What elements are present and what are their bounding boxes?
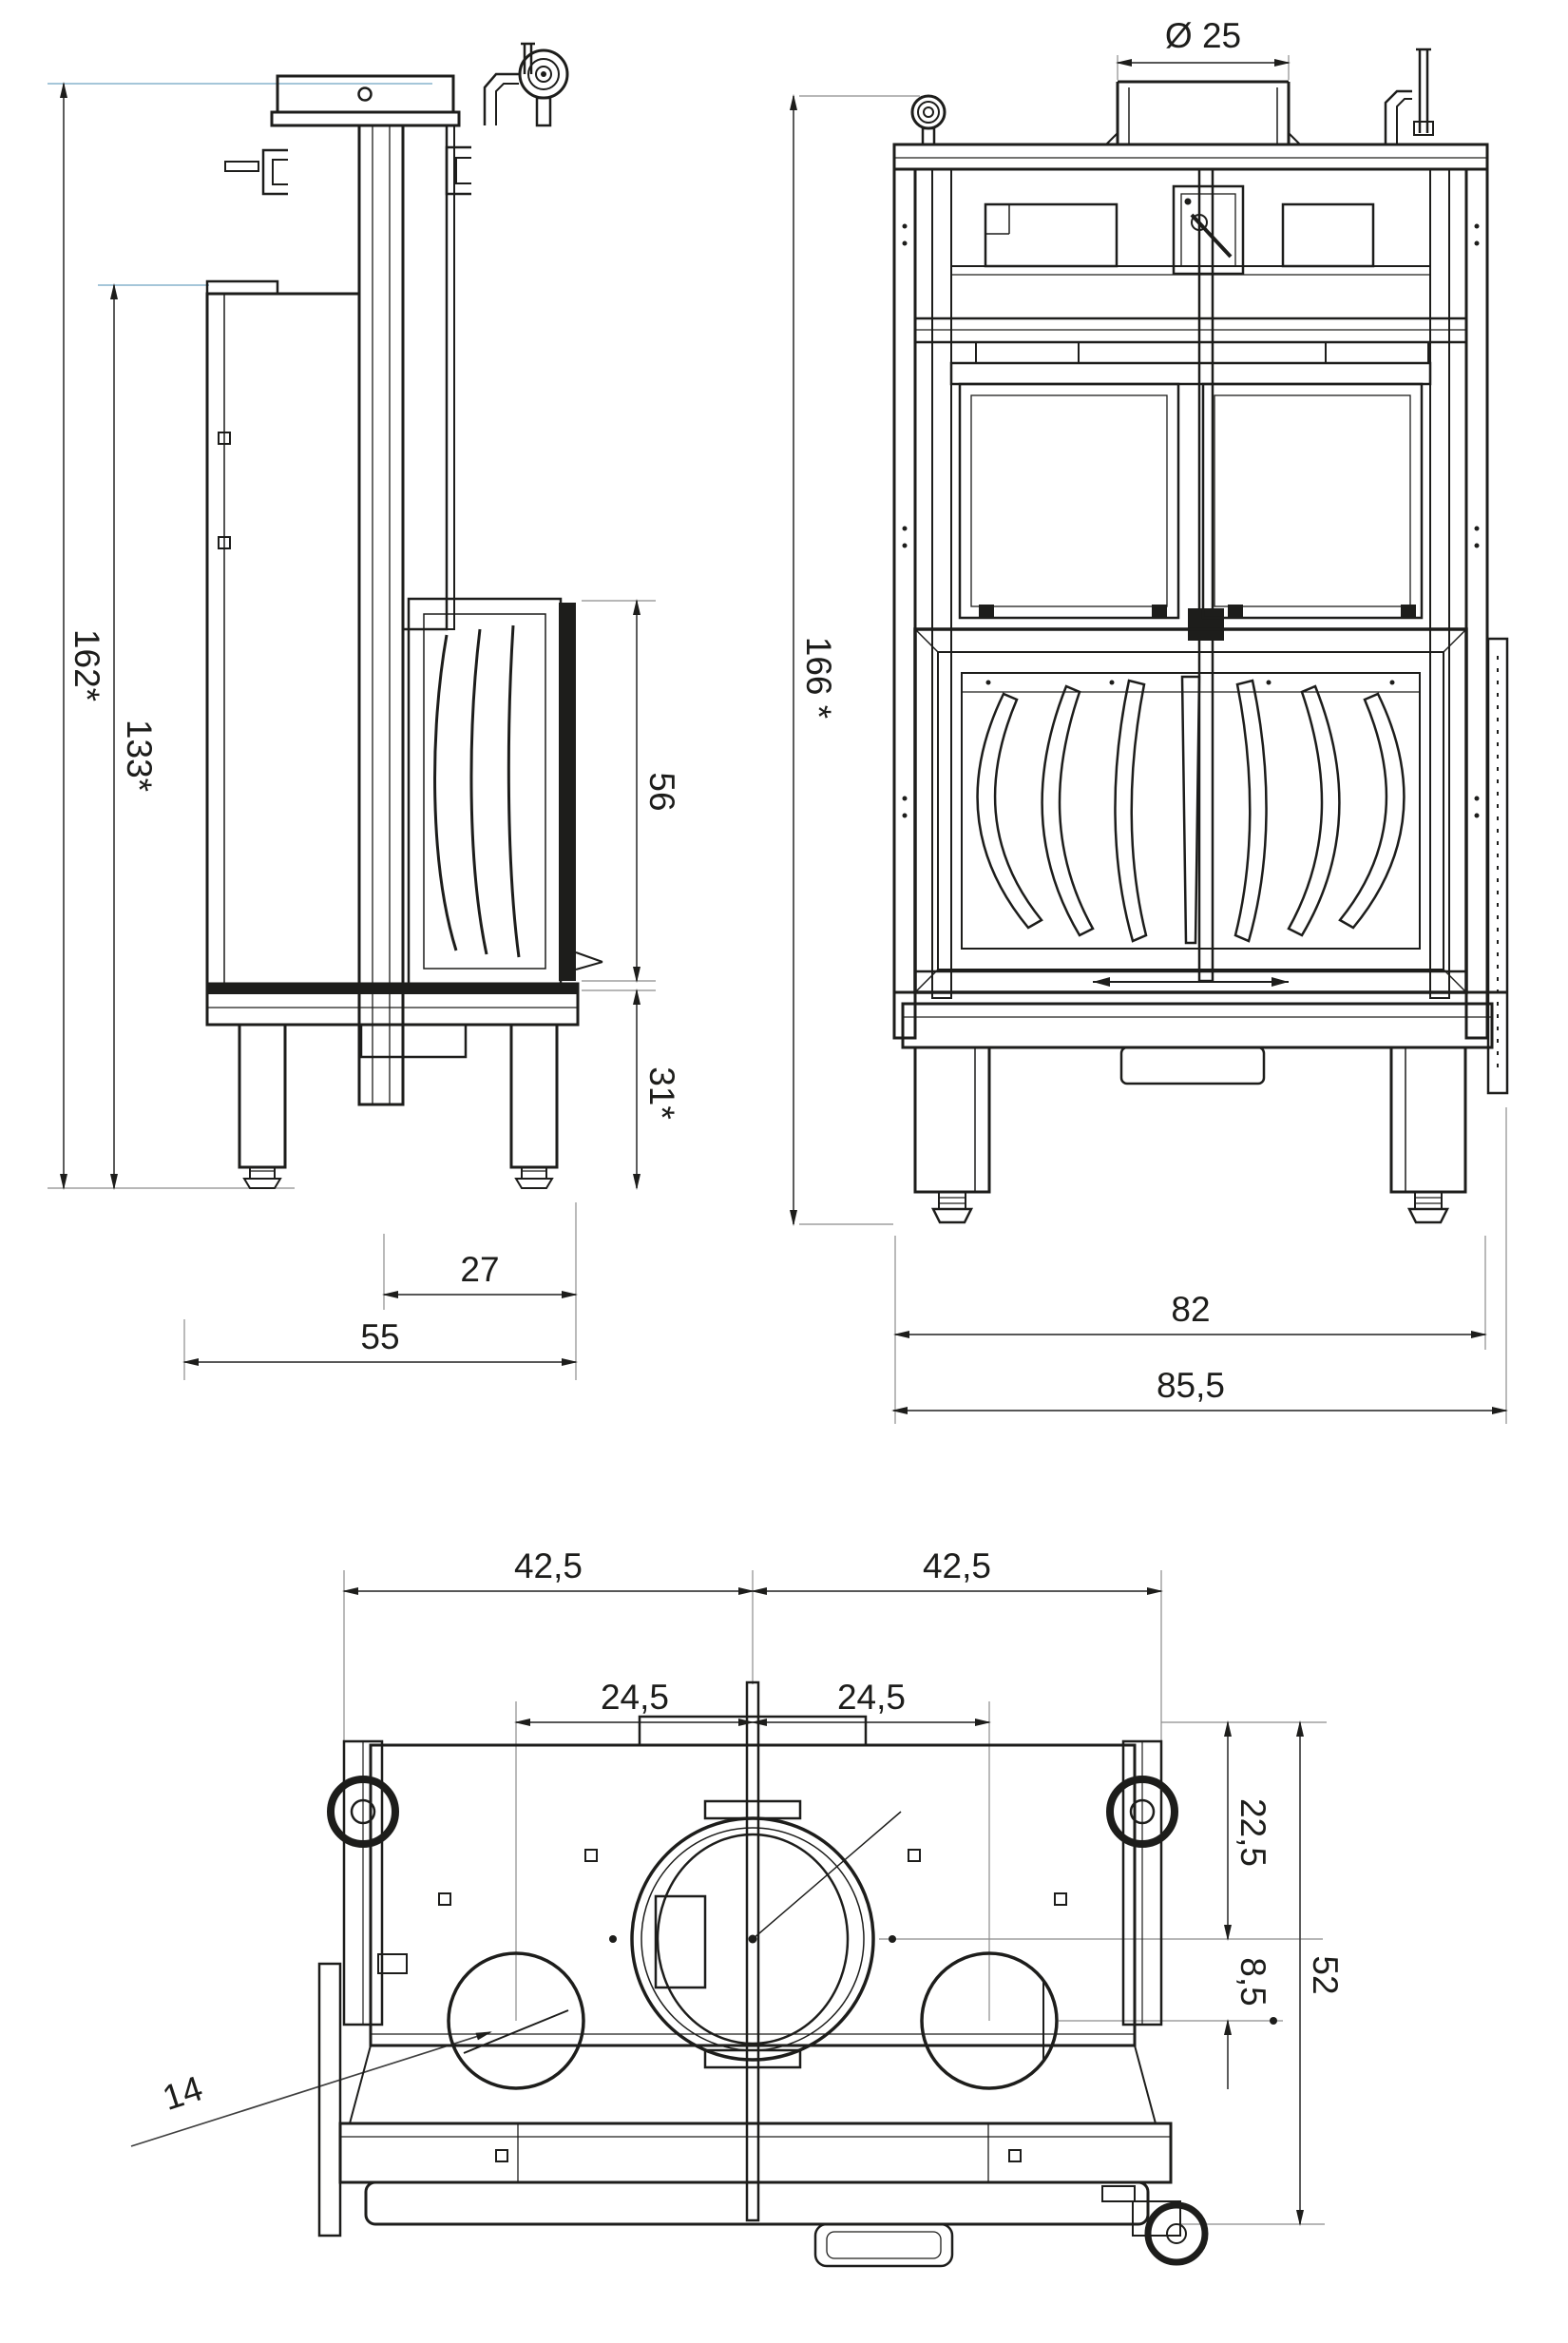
dim-plan-overall-depth-label: 52 [1306, 1955, 1345, 1994]
front-legs [915, 1047, 1465, 1222]
plan-front-frame [340, 2045, 1205, 2266]
dim-plan-right-half-width-label: 42,5 [923, 1546, 991, 1585]
dim-plan-right-outlet-offset-label: 24,5 [837, 1678, 906, 1717]
side-pulley [485, 44, 567, 125]
front-pipe-stub [1386, 49, 1433, 144]
dim-plan-left-outlet-offset-label: 24,5 [601, 1678, 669, 1717]
front-flue-collar [1106, 82, 1300, 144]
side-structure [207, 125, 471, 1104]
dim-side-door-depth-label: 27 [460, 1250, 499, 1289]
technical-drawing: 162* 133* 56 31* 27 55 [0, 0, 1568, 2343]
side-legs [239, 1025, 557, 1188]
plan-view: 42,5 42,5 24,5 24,5 22,5 8,5 52 14 [131, 1546, 1345, 2266]
dim-plan-left-half-width-label: 42,5 [514, 1546, 583, 1585]
dim-plan-flue-center-depth-label: 22,5 [1233, 1798, 1272, 1867]
dim-front-overall-height-label: 166 * [799, 637, 838, 719]
dim-side-body-height-label: 133* [120, 720, 159, 792]
dim-side-overall-height-label: 162* [67, 629, 106, 701]
side-door [409, 599, 602, 984]
plan-flue-opening [609, 1801, 901, 2067]
side-base [207, 984, 578, 1057]
dim-front-flue-diameter-label: Ø 25 [1165, 16, 1241, 55]
dim-front-inner-width-label: 82 [1171, 1290, 1210, 1329]
front-base [893, 992, 1506, 1084]
front-dimensions: 166 * Ø 25 82 85,5 [794, 16, 1506, 1424]
front-grille-door [915, 629, 1466, 992]
dim-plan-outlet-center-offset-label: 8,5 [1233, 1957, 1272, 2006]
dim-side-overall-depth-label: 55 [360, 1317, 399, 1356]
plan-body [371, 1682, 1135, 2220]
dim-side-base-height-label: 31* [642, 1066, 681, 1120]
drawing-canvas: 162* 133* 56 31* 27 55 [0, 0, 1568, 2343]
dim-front-overall-width-label: 85,5 [1157, 1366, 1225, 1405]
side-view: 162* 133* 56 31* 27 55 [48, 44, 681, 1380]
front-control-knob [912, 96, 945, 144]
dim-plan-outlet-diameter-label: 14 [158, 2068, 207, 2118]
front-view: 166 * Ø 25 82 85,5 [794, 16, 1507, 1424]
front-upper-chamber [915, 169, 1466, 981]
dim-side-door-height-label: 56 [642, 772, 681, 811]
side-dimensions: 162* 133* 56 31* 27 55 [48, 84, 681, 1380]
